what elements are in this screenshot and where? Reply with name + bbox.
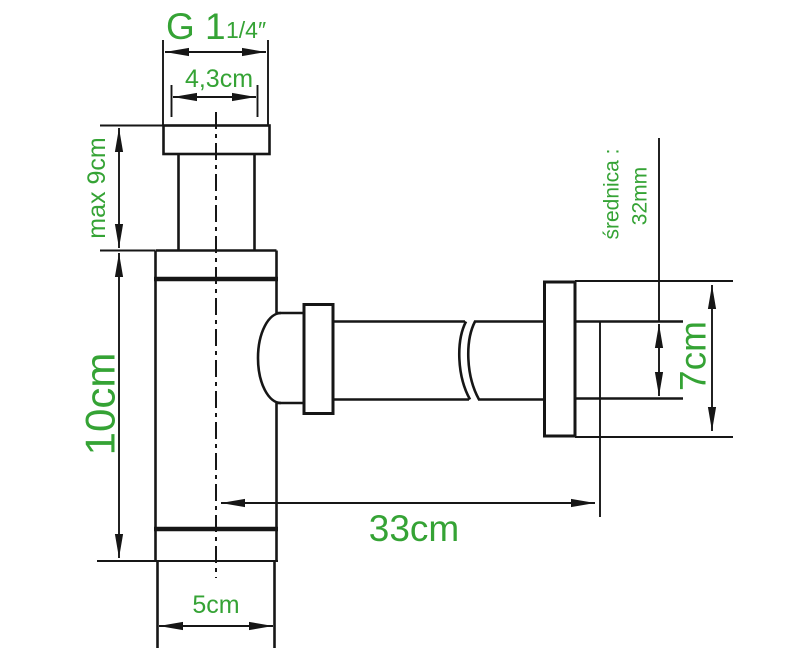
flange-height-label: 7cm (673, 321, 714, 391)
wall-flange (545, 281, 734, 517)
siphon-dimension-drawing: G 1 1/4″ 4,3cm max 9cm 10cm średnica : 3… (0, 0, 800, 672)
outlet-boss (258, 313, 303, 403)
max-inlet-height-label: max 9cm (83, 137, 111, 238)
pipe-diameter-title-label: średnica : (601, 148, 624, 239)
dimension-flange-height: 7cm (673, 285, 714, 431)
horizontal-pipe (333, 322, 543, 400)
dimension-max-inlet-height: max 9cm (83, 126, 163, 251)
pipe-diameter-value-label: 32mm (629, 167, 652, 225)
dimension-body-width: 5cm (159, 591, 273, 626)
technical-drawing: G 1 1/4″ 4,3cm max 9cm 10cm średnica : 3… (0, 0, 800, 672)
top-nut-width-label: 4,3cm (185, 65, 253, 93)
body-height-label: 10cm (77, 353, 124, 456)
thread-size-label: G 1 (166, 6, 226, 47)
dimension-pipe-diameter: średnica : 32mm (601, 138, 660, 396)
dimension-body-height: 10cm (77, 253, 279, 561)
body-width-label: 5cm (192, 591, 239, 619)
pipe-break-right (468, 322, 479, 400)
outlet-nut (304, 305, 333, 414)
dimension-top-nut-width: 4,3cm (172, 65, 258, 117)
horizontal-length-label: 33cm (369, 508, 459, 549)
thread-size-fraction-label: 1/4″ (226, 17, 266, 43)
